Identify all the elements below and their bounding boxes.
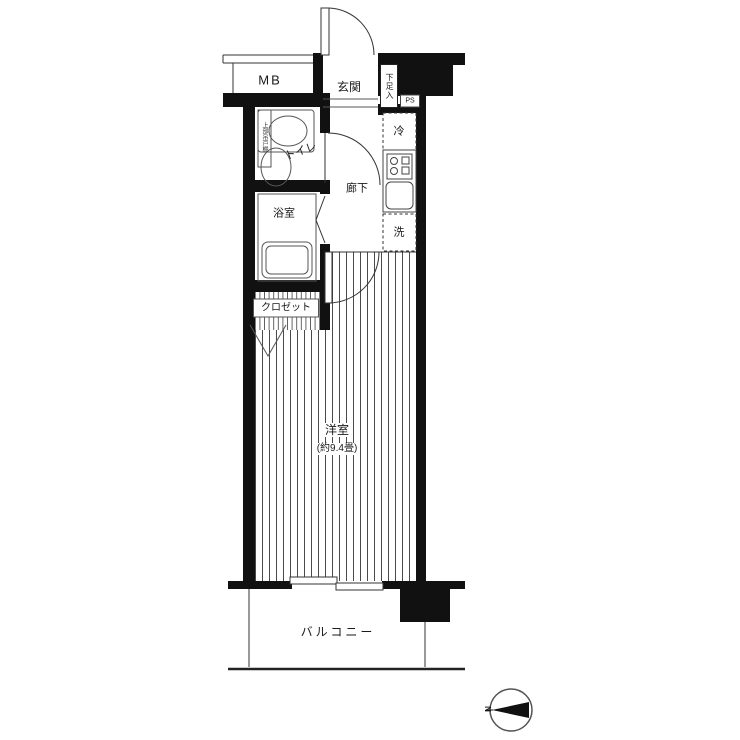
label-balcony: バルコニー — [301, 626, 376, 638]
label-room-name: 洋室 — [323, 423, 351, 437]
wall-right — [416, 100, 426, 588]
entrance-step-lines — [323, 99, 378, 107]
bathtub-outer — [262, 242, 312, 278]
bathroom-folding-door — [316, 196, 325, 243]
wall-bottom-left — [228, 581, 292, 589]
label-toilet-cabinet: 上部吊戸棚 — [261, 122, 267, 152]
wall-left — [243, 100, 255, 588]
label-shoe-storage: 下足入 — [380, 64, 398, 108]
entrance-door-arc — [329, 8, 374, 55]
label-pipe-shaft: PS — [400, 95, 420, 108]
wall-bath-closet-divider — [243, 280, 330, 292]
wall-core-right-b — [320, 183, 330, 194]
wall-core-right-a — [320, 100, 330, 133]
label-compass-north: N — [485, 706, 493, 712]
label-closet: クロゼット — [253, 299, 319, 318]
entrance-door — [321, 8, 374, 55]
label-room-size: (約9.4畳) — [315, 443, 360, 455]
room-door-leaf — [325, 252, 332, 303]
label-mb: MB — [258, 74, 282, 87]
wall-bottom-right-block — [400, 589, 450, 622]
label-washer: 洗 — [394, 228, 405, 239]
label-refrigerator: 冷 — [394, 127, 405, 138]
entrance-door-leaf — [321, 8, 329, 55]
label-hallway: 廊下 — [346, 184, 368, 195]
floorplan-canvas: MB 玄関 下足入 PS 冷 上部吊戸棚 トイレ 廊下 浴室 洗 クロゼット 洋… — [0, 0, 740, 740]
window-panel-right — [336, 583, 383, 590]
wall-entrance-left — [313, 53, 323, 107]
bathtub-inner — [266, 246, 308, 274]
window-panel-left — [290, 577, 337, 584]
kitchen-counter — [383, 150, 416, 212]
washbasin — [269, 116, 307, 146]
label-entrance: 玄関 — [337, 81, 361, 93]
label-bathroom: 浴室 — [273, 209, 295, 220]
toilet-door-arc — [328, 133, 380, 185]
wall-bottom-right — [382, 581, 465, 589]
